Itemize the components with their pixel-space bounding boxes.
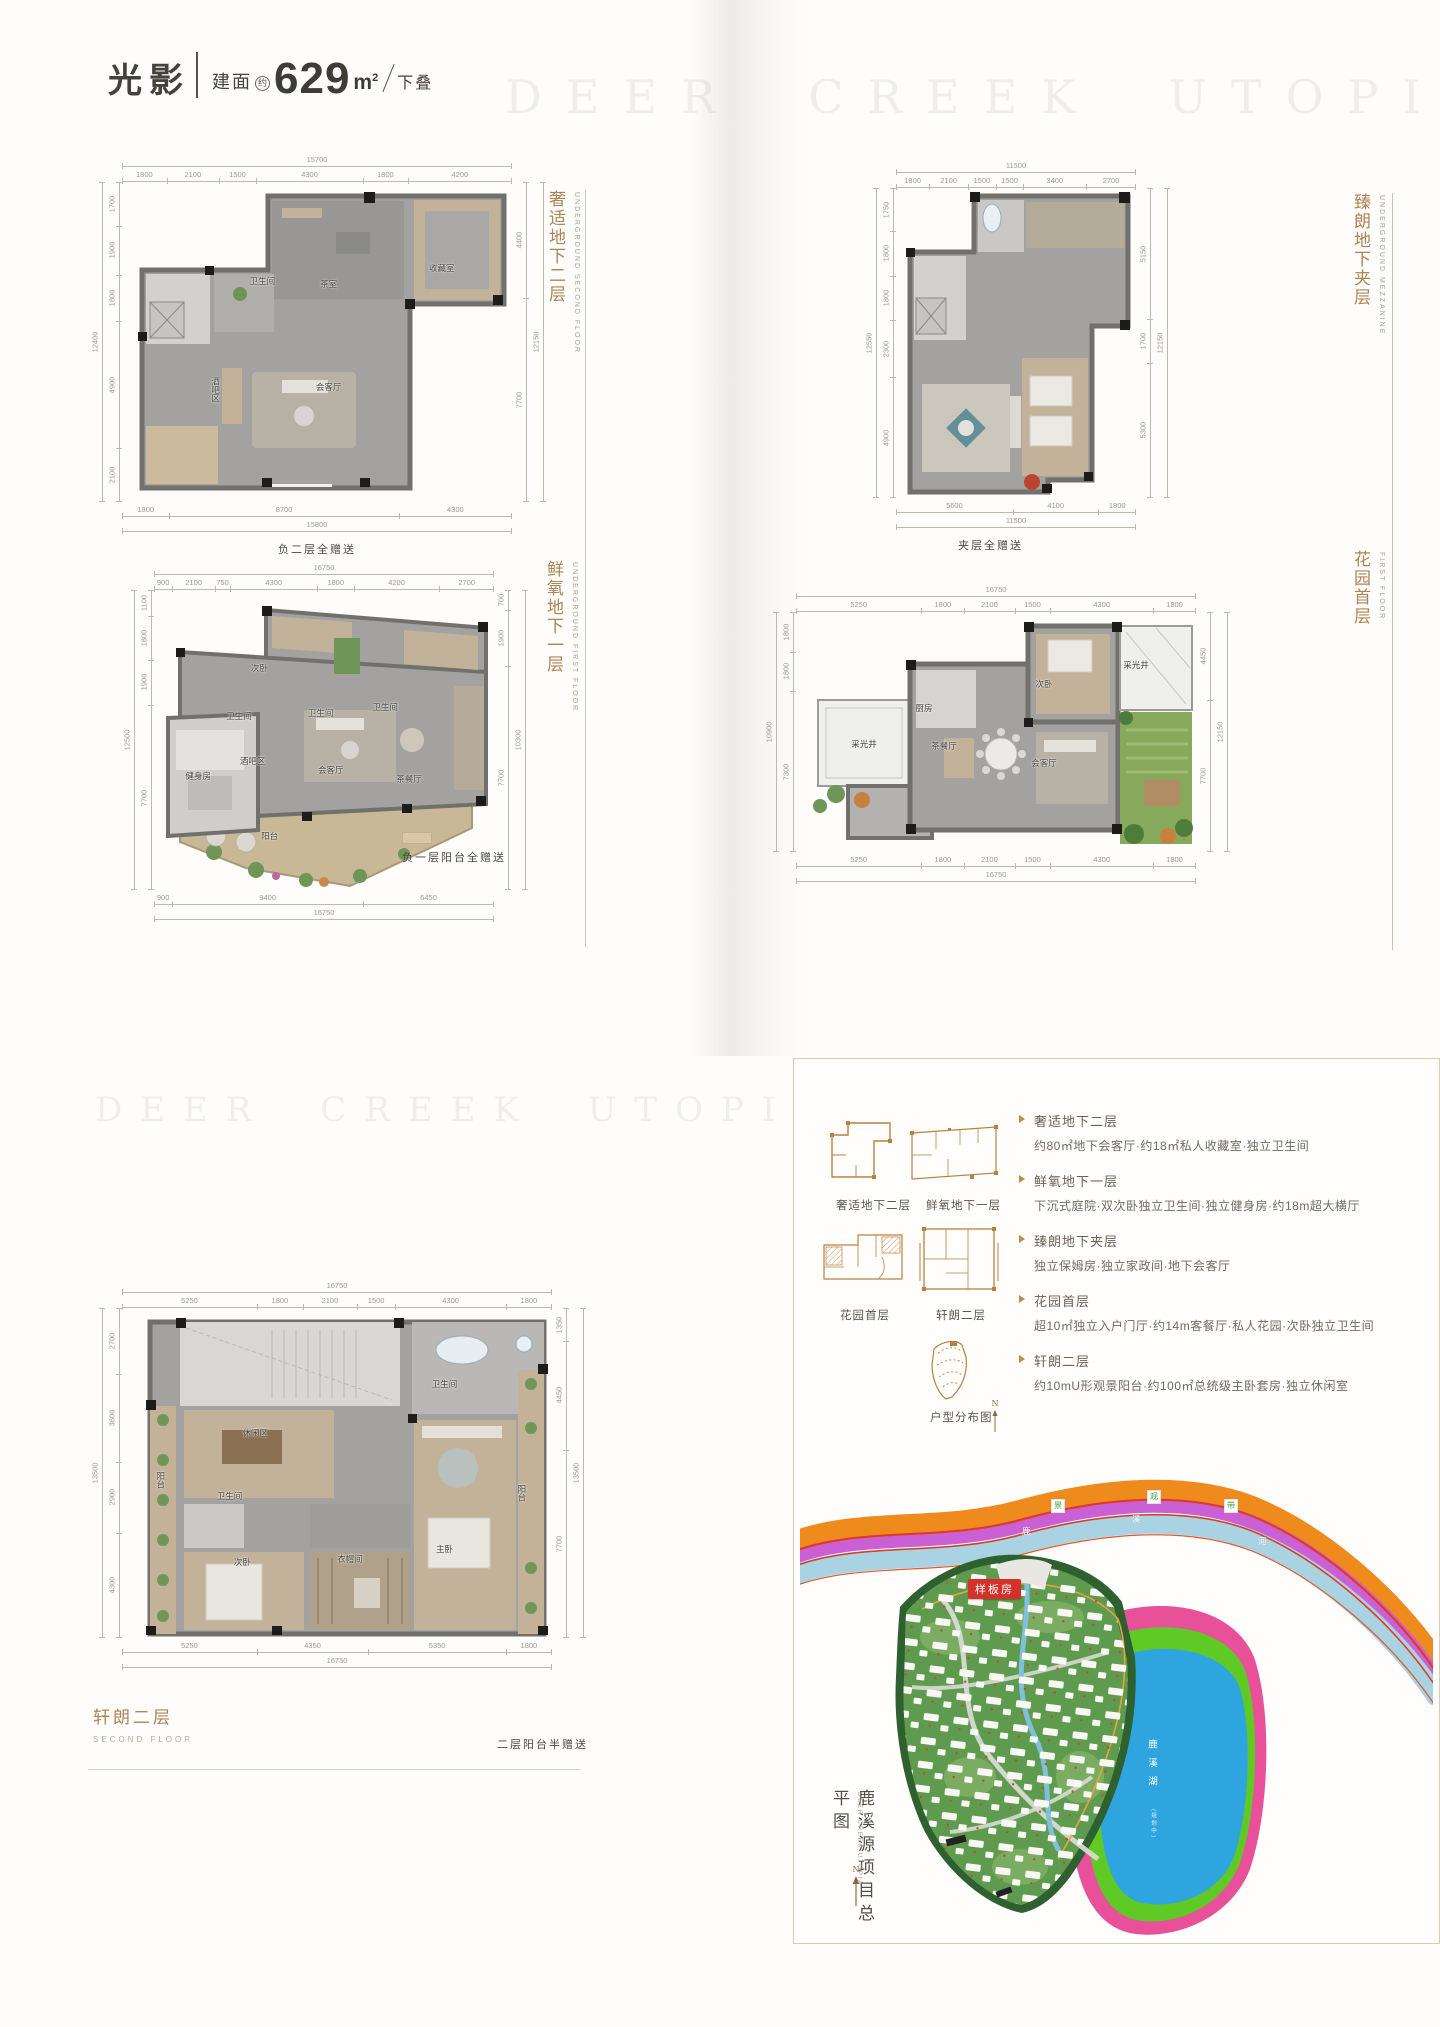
thumb-second-floor <box>916 1223 1002 1300</box>
dimension-value: 2100 <box>929 175 968 188</box>
dimension-value: 1800 <box>896 175 929 188</box>
dimension-value: 12400 <box>88 182 103 502</box>
plan-canvas <box>896 188 1136 498</box>
dimension-value: 5300 <box>1136 363 1151 498</box>
approx-circle-icon: 约 <box>255 76 270 91</box>
dimension-value: 10300 <box>511 590 526 890</box>
dimension-value: 6450 <box>363 892 494 905</box>
room-label: 酒吧区 <box>210 377 222 403</box>
room-label: 卫生间 <box>226 710 252 722</box>
dimension-value: 4900 <box>879 377 894 498</box>
floorplan-drawing <box>796 612 1196 852</box>
dimension-value: 2100 <box>964 599 1014 612</box>
dimension-value: 5150 <box>1136 188 1151 319</box>
greenway-badge: 景 <box>1051 1499 1065 1513</box>
dimension-value: 1800 <box>137 616 152 659</box>
room-label: 采光井 <box>851 738 877 750</box>
dimension-value: 4200 <box>354 577 439 590</box>
dimension-value: 700 <box>494 590 509 610</box>
dimension-value: 1800 <box>105 275 120 321</box>
lake-note: (规划中) <box>1149 1809 1157 1839</box>
dimension-value: 5250 <box>796 854 921 867</box>
dimension-value: 1700 <box>1136 319 1151 362</box>
dimension-value: 1500 <box>357 1295 396 1308</box>
dimension-value: 16750 <box>154 907 494 920</box>
label-garden-first-floor: 花园首层 FIRST FLOOR <box>1348 550 1440 626</box>
plan-caption: 夹层全赠送 <box>862 537 1170 553</box>
dims-right: 51501700530012150 <box>1136 188 1170 498</box>
dimension-value: 15700 <box>122 154 512 167</box>
dimension-value: 1800 <box>779 652 794 692</box>
dims-bottom: 52501800210015004300180016750 <box>796 852 1196 882</box>
thumb-label: 轩朗二层 <box>936 1307 986 1323</box>
room-label: 阳台 <box>261 830 278 842</box>
room-label: 会客厅 <box>318 764 344 776</box>
info-panel: 奢适地下二层 鲜氧地下一层 花园首层 轩朗二层 户型分布图 N 奢适地下二层 约… <box>793 1058 1440 1944</box>
dimension-value: 16750 <box>122 1280 552 1293</box>
dimension-value: 16750 <box>122 1655 552 1668</box>
dims-right: 4400770012150 <box>512 182 546 502</box>
dimension-value: 7300 <box>779 691 794 852</box>
bullet-icon <box>1019 1235 1025 1243</box>
room-label: 厨房 <box>915 702 932 714</box>
watermark-middle: DEER CREEK UTOPIA <box>95 1090 836 1130</box>
dimension-value: 1700 <box>105 182 120 226</box>
dimension-value: 4300 <box>399 504 512 517</box>
dimension-value: 1100 <box>137 590 152 616</box>
dimension-value: 1800 <box>122 169 167 182</box>
dimension-value: 1800 <box>1098 500 1136 513</box>
room-label: 健身房 <box>185 770 211 782</box>
room-label: 次卧 <box>234 1556 251 1568</box>
dimension-value: 7700 <box>137 705 152 890</box>
dimension-value: 1800 <box>257 1295 303 1308</box>
dimension-value: 16750 <box>796 584 1196 597</box>
dimension-value: 4300 <box>105 1533 120 1638</box>
dims-right: 4450770012150 <box>1196 612 1230 852</box>
dimension-value: 11500 <box>896 160 1136 173</box>
dimension-value: 4300 <box>1050 854 1153 867</box>
dims-bottom: 18008700430015800 <box>122 502 512 532</box>
dimension-value: 1800 <box>317 577 354 590</box>
greenway-badge: 观 <box>1147 1490 1161 1504</box>
second-floor-title: 轩朗二层 SECOND FLOOR <box>93 1703 193 1744</box>
plan-canvas: 卫生间茶室收藏室会客厅酒吧区 <box>122 182 512 502</box>
room-label: 阳台 <box>155 1471 167 1488</box>
greenway-badge: 带 <box>1224 1499 1238 1513</box>
dimension-value: 4300 <box>256 169 363 182</box>
bullet-icon <box>1019 1355 1025 1363</box>
dimension-value: 4200 <box>408 169 512 182</box>
north-arrow-icon: N <box>850 1865 862 1908</box>
room-label: 卫生间 <box>432 1378 458 1390</box>
lake-label: 鹿溪湖 <box>1144 1739 1158 1795</box>
label-underground-first-floor: 鲜氧地下一层 UNDERGROUND FIRST FLOOR <box>541 560 717 712</box>
dimension-value: 900 <box>154 577 172 590</box>
dimension-value: 4100 <box>1013 500 1099 513</box>
dimension-value: 1900 <box>105 226 120 275</box>
dims-top: 15700180021001500430018004200 <box>122 152 512 182</box>
feature-item: 轩朗二层 约10mU形观景阳台·约100㎡总统级主卧套房·独立休闲室 <box>1019 1351 1424 1394</box>
dimension-value: 15800 <box>122 519 512 532</box>
north-arrow-icon: N <box>990 1399 1000 1434</box>
thumb-underground-second <box>826 1117 896 1188</box>
room-label: 采光井 <box>1123 659 1149 671</box>
room-label: 阳台 <box>516 1484 528 1501</box>
footer-rule <box>88 1769 580 1770</box>
dims-right: 13504450770013500 <box>552 1308 586 1638</box>
dimension-value: 10900 <box>762 612 777 852</box>
floorplan-drawing <box>122 1308 552 1638</box>
dimension-value: 1800 <box>1153 854 1196 867</box>
room-label: 卫生间 <box>250 275 276 287</box>
plan-canvas: 休闲区卫生间次卧衣帽间主卧卫生间阳台阳台 <box>122 1308 552 1638</box>
dimension-value: 5250 <box>122 1640 257 1653</box>
room-label: 卫生间 <box>372 701 398 713</box>
dims-top: 11500180021001500150034002700 <box>896 158 1136 188</box>
site-map-drawing <box>800 1477 1433 1939</box>
floorplan-second-floor: 16750525018002100150043001800 1350027003… <box>88 1278 586 1668</box>
dimension-value: 3600 <box>105 1374 120 1462</box>
dims-left: 10900180018007300 <box>762 612 796 852</box>
dimension-value: 16750 <box>796 869 1196 882</box>
dimension-value: 1500 <box>1015 599 1051 612</box>
dims-left: 125001100180019007700 <box>120 590 154 890</box>
dimension-value: 12150 <box>529 182 544 502</box>
feature-item: 花园首层 超10㎡独立入户门厅·约14m客餐厅·私人花园·次卧独立卫生间 <box>1019 1291 1424 1334</box>
dimension-value: 1800 <box>879 231 894 275</box>
dimension-value: 1800 <box>122 504 169 517</box>
dims-left: 135002700360029004300 <box>88 1308 122 1638</box>
dimension-value: 1800 <box>879 276 894 320</box>
room-label: 次卧 <box>251 662 268 674</box>
thumb-distribution-fan <box>926 1335 970 1408</box>
sample-house-badge: 样板房 <box>968 1579 1021 1599</box>
dims-left: 1255017501800180023004900 <box>862 188 896 498</box>
dimension-value: 2700 <box>1086 175 1136 188</box>
dimension-value: 3400 <box>1023 175 1086 188</box>
feature-list: 奢适地下二层 约80㎡地下会客厅·约18㎡私人收藏室·独立卫生间 鲜氧地下一层 … <box>1019 1111 1424 1411</box>
dims-bottom: 56004100180011500 <box>896 498 1136 528</box>
dimension-value: 5600 <box>896 500 1013 513</box>
dimension-value: 2100 <box>167 169 219 182</box>
dimension-value: 1500 <box>219 169 256 182</box>
feature-item: 鲜氧地下一层 下沉式庭院·双次卧独立卫生间·独立健身房·约18m超大横厅 <box>1019 1171 1424 1214</box>
dimension-value: 7700 <box>1196 700 1211 852</box>
room-label: 茶餐厅 <box>396 773 422 785</box>
dimension-value: 2100 <box>105 448 120 502</box>
dimension-value: 1800 <box>921 599 964 612</box>
dimension-value: 13500 <box>88 1308 103 1638</box>
dims-left: 1240017001900180049002100 <box>88 182 122 502</box>
dimension-value: 1800 <box>1153 599 1196 612</box>
dimension-value: 2900 <box>105 1462 120 1533</box>
balcony-legend: 负一层阳台全赠送 <box>402 832 506 865</box>
dims-top: 16750525018002100150043001800 <box>122 1278 552 1308</box>
dimension-value: 4350 <box>257 1640 369 1653</box>
floorplan-garden-first: 16750525018002100150043001800 1090018001… <box>762 582 1230 882</box>
dimension-value: 2300 <box>879 320 894 377</box>
dimension-value: 12150 <box>1153 188 1168 498</box>
header-divider <box>196 52 198 98</box>
area-spec: 建面 约 629 m2 下叠 <box>212 61 433 98</box>
page-fold-shadow <box>690 0 810 1056</box>
dimension-value: 16750 <box>154 562 494 575</box>
floorplan-mezzanine: 11500180021001500150034002700 1255017501… <box>862 158 1170 553</box>
room-label: 主卧 <box>436 1543 453 1555</box>
room-label: 休闲区 <box>243 1427 269 1439</box>
dimension-value: 2100 <box>964 854 1014 867</box>
room-label: 会客厅 <box>316 381 342 393</box>
dimension-value: 1900 <box>494 610 509 665</box>
floorplan-drawing <box>896 188 1136 498</box>
dimension-value: 7700 <box>552 1450 567 1638</box>
dimension-value: 1350 <box>552 1308 567 1341</box>
dimension-value: 5250 <box>796 599 921 612</box>
river-label-char: 河 <box>1258 1535 1267 1547</box>
dimension-value: 1800 <box>921 854 964 867</box>
dimension-value: 11500 <box>896 515 1136 528</box>
dimension-value: 2100 <box>172 577 215 590</box>
dimension-value: 4300 <box>230 577 317 590</box>
dimension-value: 1800 <box>363 169 408 182</box>
label-underground-mezzanine: 臻朗地下夹层 UNDERGROUND MEZZANINE <box>1348 193 1440 335</box>
dimension-value: 1800 <box>506 1295 552 1308</box>
room-label: 衣帽间 <box>337 1553 363 1565</box>
floorplan-underground-second: 15700180021001500430018004200 1240017001… <box>88 152 546 557</box>
river-label-char: 鹿 <box>1022 1525 1031 1537</box>
floorplan-drawing <box>122 182 512 502</box>
dimension-value: 7700 <box>494 666 509 890</box>
dimension-value: 2100 <box>303 1295 357 1308</box>
thumb-underground-first <box>908 1119 1000 1188</box>
dimension-value: 4300 <box>395 1295 505 1308</box>
thumb-label: 花园首层 <box>840 1307 890 1323</box>
dimension-value: 2700 <box>105 1308 120 1374</box>
dimension-value: 4450 <box>552 1341 567 1450</box>
room-label: 卫生间 <box>217 1490 243 1502</box>
dimension-value: 13500 <box>569 1308 584 1638</box>
room-label: 茶室 <box>320 278 337 290</box>
dimension-value: 1800 <box>506 1640 552 1653</box>
room-label: 收藏室 <box>429 262 455 274</box>
dimension-value: 8700 <box>169 504 398 517</box>
feature-item: 臻朗地下夹层 独立保姆房·独立家政间·地下会客厅 <box>1019 1231 1424 1274</box>
dimension-value: 5250 <box>122 1295 257 1308</box>
dimension-value: 1500 <box>996 175 1024 188</box>
thumb-label: 户型分布图 <box>930 1409 993 1425</box>
bullet-icon <box>1019 1115 1025 1123</box>
dimension-value: 4300 <box>1050 599 1153 612</box>
dimension-value: 750 <box>215 577 230 590</box>
dimension-value: 4450 <box>1196 612 1211 700</box>
page-title: 光影 <box>108 64 190 98</box>
dimension-value: 1500 <box>968 175 996 188</box>
thumb-label: 鲜氧地下一层 <box>926 1197 1001 1213</box>
floorplan-underground-first: 1675090021007504300180042002700 12500110… <box>120 560 528 920</box>
area-value: 629 <box>274 61 350 97</box>
area-label: 建面 <box>212 68 252 97</box>
thumb-label: 奢适地下二层 <box>836 1197 911 1213</box>
dimension-value: 5350 <box>368 1640 505 1653</box>
bullet-icon <box>1019 1175 1025 1183</box>
river-label-char: 溪 <box>1132 1513 1141 1525</box>
dimension-value: 1500 <box>1015 854 1051 867</box>
slash-divider <box>383 64 395 92</box>
dimension-value: 1900 <box>137 660 152 706</box>
footer-caption: 二层阳台半赠送 <box>390 1736 588 1752</box>
dims-bottom: 9009400645016750 <box>154 890 494 920</box>
dimension-value: 12500 <box>120 590 135 890</box>
room-label: 卫生间 <box>308 707 334 719</box>
label-underground-second-floor: 奢适地下二层 UNDERGROUND SECOND FLOOR <box>543 190 719 354</box>
dimension-value: 1750 <box>879 188 894 231</box>
dimension-value: 12150 <box>1213 612 1228 852</box>
room-label: 酒吧区 <box>240 755 266 767</box>
dimension-value: 2700 <box>439 577 494 590</box>
dimension-value: 1800 <box>779 612 794 652</box>
dims-top: 1675090021007504300180042002700 <box>154 560 494 590</box>
bullet-icon <box>1019 1295 1025 1303</box>
watermark-top: DEER CREEK UTOPIA <box>505 70 1440 124</box>
thumb-garden-first <box>818 1227 908 1298</box>
plan-canvas: 采光井厨房茶餐厅次卧会客厅采光井 <box>796 612 1196 852</box>
dimension-value: 9400 <box>172 892 363 905</box>
dims-bottom: 525043505350180016750 <box>122 1638 552 1668</box>
dims-top: 16750525018002100150043001800 <box>796 582 1196 612</box>
feature-item: 奢适地下二层 约80㎡地下会客厅·约18㎡私人收藏室·独立卫生间 <box>1019 1111 1424 1154</box>
type-label: 下叠 <box>397 69 433 97</box>
page-header: 光影 建面 约 629 m2 下叠 <box>108 52 433 98</box>
dimension-value: 12550 <box>862 188 877 498</box>
room-label: 次卧 <box>1035 678 1052 690</box>
dimension-value: 4900 <box>105 321 120 447</box>
dimension-value: 900 <box>154 892 172 905</box>
dimension-value: 7700 <box>512 298 527 502</box>
area-unit: m2 <box>353 71 378 97</box>
room-label: 茶餐厅 <box>931 740 957 752</box>
site-masterplan: 景 观 带 鹿 溪 河 样板房 鹿溪湖 (规划中) <box>800 1477 1433 1939</box>
plan-caption: 负二层全赠送 <box>88 541 546 557</box>
dims-right: 7001900770010300 <box>494 590 528 890</box>
dimension-value: 4400 <box>512 182 527 298</box>
room-label: 会客厅 <box>1031 757 1057 769</box>
